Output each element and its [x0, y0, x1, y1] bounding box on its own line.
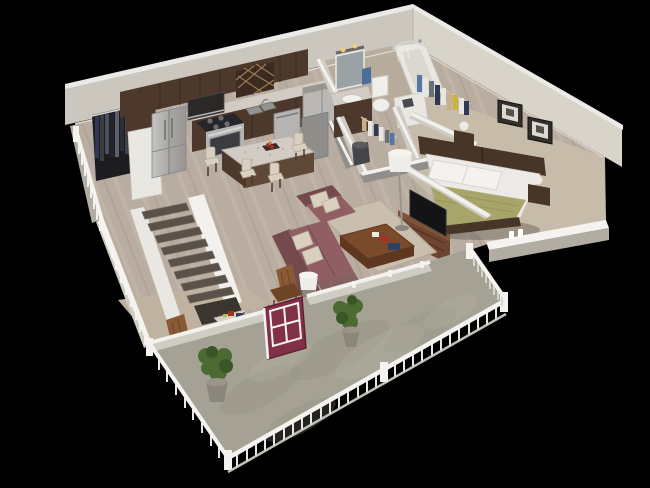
railing-post [146, 338, 153, 356]
toilet-tank [372, 75, 388, 98]
framed-picture [498, 100, 522, 127]
towel [362, 67, 371, 85]
railing-post [380, 362, 388, 382]
vanity-light [353, 44, 358, 49]
dark-tray [388, 243, 400, 250]
toilet [372, 75, 390, 112]
vanity-light [341, 48, 346, 53]
vanity-mirror [336, 50, 364, 90]
table-lamp [534, 176, 543, 185]
floorplan-3d-render [0, 0, 650, 488]
toilet-bowl [373, 99, 390, 112]
railing-post [224, 450, 232, 470]
white-card [372, 232, 379, 237]
railing-post [73, 126, 79, 142]
railing-post [466, 243, 473, 259]
shower-head [418, 39, 422, 43]
framed-picture [528, 117, 552, 144]
laundry-hamper [352, 142, 370, 167]
desk-item-red [228, 311, 234, 316]
french-door [264, 297, 306, 359]
floorplan-stage [0, 0, 650, 488]
refrigerator [152, 106, 186, 178]
table-lamp [460, 122, 469, 131]
desk-item-yellow [223, 314, 227, 317]
red-book [380, 236, 389, 242]
